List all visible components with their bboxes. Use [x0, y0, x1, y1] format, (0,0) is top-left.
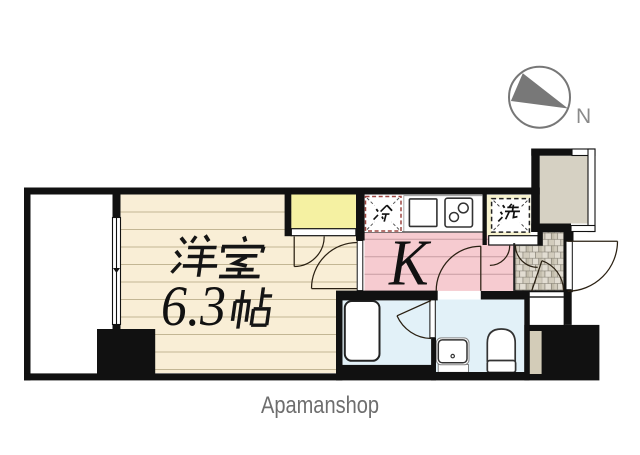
svg-text:N: N — [576, 105, 591, 128]
svg-text:K: K — [388, 226, 432, 300]
svg-text:Apamanshop: Apamanshop — [261, 392, 379, 419]
svg-text:6.3: 6.3 — [161, 275, 226, 338]
